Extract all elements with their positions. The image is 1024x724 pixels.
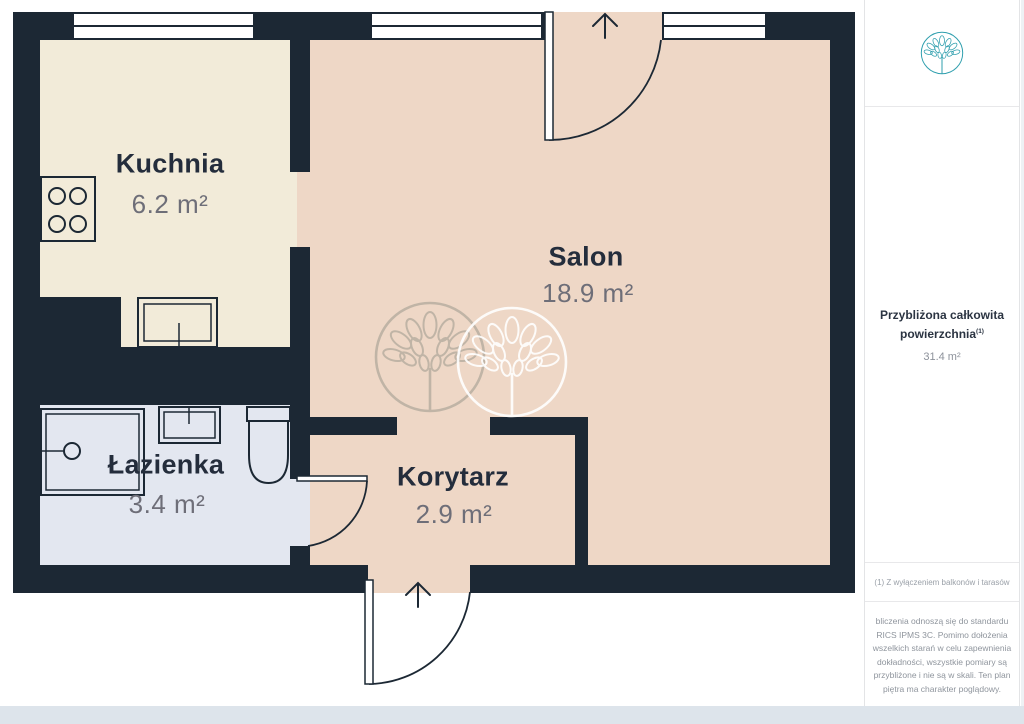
wall-korytarz-left-stub [305,417,397,435]
footnote-section: (1) Z wyłączeniem balkonów i tarasów [865,563,1019,602]
wall-korytarz-right-stub [490,417,588,435]
salon-opening-patch [297,172,310,247]
entrance-door-swing [365,580,470,684]
logo-section [865,0,1019,107]
info-sidebar: Przybliżona całkowita powierzchnia(1) 31… [864,0,1020,706]
room-area-salon: 18.9 m² [542,280,634,306]
room-area-kuchnia: 6.2 m² [132,191,209,217]
footnote-text: (1) Z wyłączeniem balkonów i tarasów [867,578,1017,587]
room-label-korytarz: Korytarz [397,464,509,491]
window-mullion [73,25,254,27]
room-label-kuchnia: Kuchnia [116,151,225,178]
disclaimer-text: bliczenia odnoszą się do standardu RICS … [867,615,1017,697]
window-mullion [663,25,766,27]
salon-window-left [370,12,543,40]
bathroom-door-opening [290,479,310,546]
kitchen-window [72,12,255,40]
entrance-opening [368,565,470,593]
room-area-lazienka: 3.4 m² [129,491,206,517]
room-area-korytarz: 2.9 m² [416,501,493,527]
kitchen-opening-patch [290,172,297,247]
bathroom-floor [40,405,290,565]
summary-section: Przybliżona całkowita powierzchnia(1) 31… [865,107,1019,563]
total-area-value: 31.4 m² [923,351,960,363]
room-label-salon: Salon [548,244,623,271]
floor-plan: Kuchnia 6.2 m² Salon 18.9 m² Łazienka 3.… [13,12,855,593]
wall-korytarz-salon-divider [575,435,588,565]
salon-window-right [662,12,767,40]
kitchen-floor-step [121,297,290,347]
total-area-title: Przybliżona całkowita powierzchnia(1) [876,306,1008,343]
room-label-lazienka: Łazienka [108,452,224,479]
footnote-marker: (1) [976,328,984,335]
giraffe360-tree-logo-icon [919,30,965,76]
balcony-door-opening [553,12,662,40]
window-mullion [371,25,542,27]
total-area-title-text: Przybliżona całkowita powierzchnia [880,308,1004,341]
disclaimer-section: bliczenia odnoszą się do standardu RICS … [865,602,1019,706]
bottom-page-strip [0,706,1024,724]
